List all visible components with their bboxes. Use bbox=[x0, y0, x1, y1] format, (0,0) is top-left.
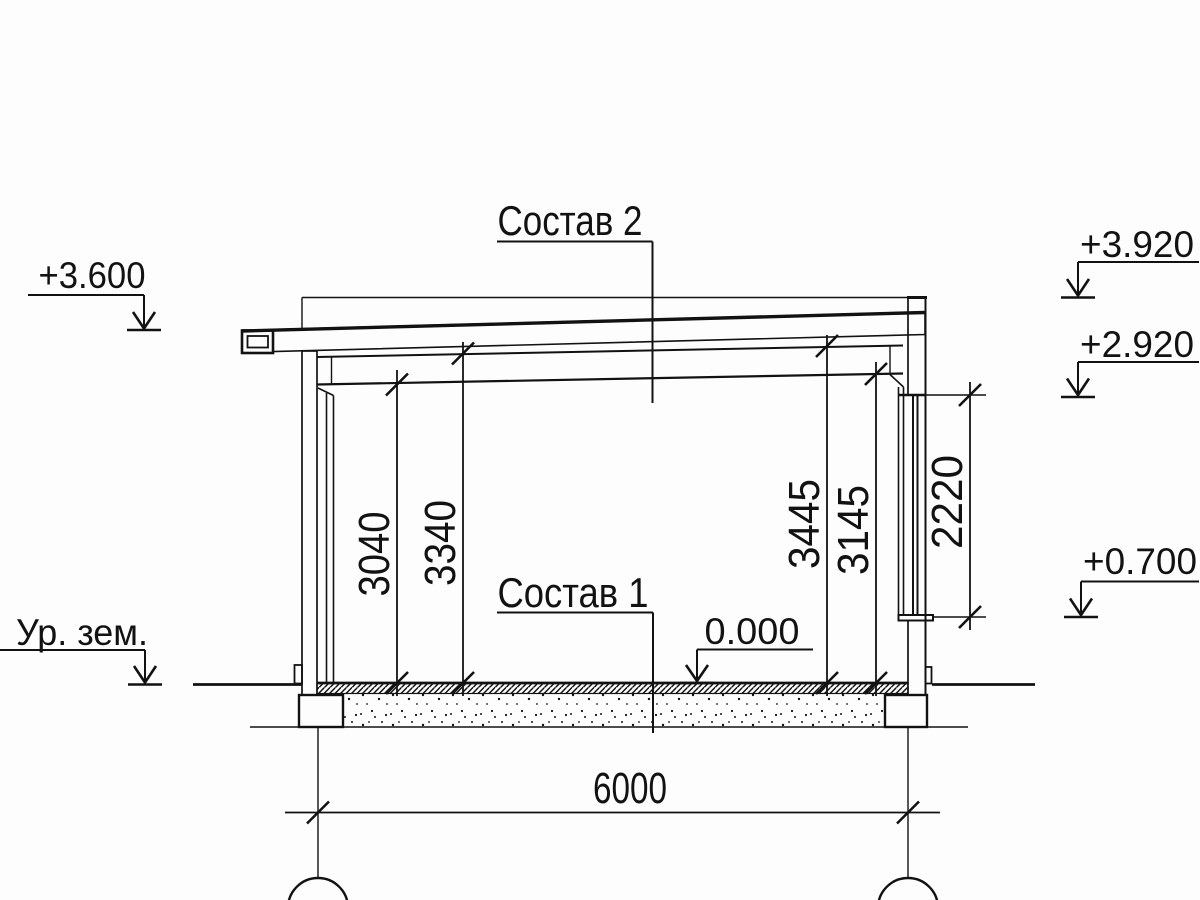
ground-level-text: Ур. зем. bbox=[16, 612, 148, 653]
grid-bubble-left bbox=[288, 878, 348, 900]
dim-soffit-height-left: 3340 bbox=[416, 342, 474, 696]
floor-level-text: 0.000 bbox=[705, 611, 800, 652]
left-wall bbox=[295, 351, 334, 695]
right-foundation-block bbox=[885, 695, 927, 727]
eave-level-text: +3.600 bbox=[39, 255, 146, 296]
opening-top-level-text: +2.920 bbox=[1080, 324, 1194, 365]
sill-level-text: +0.700 bbox=[1083, 541, 1197, 582]
roof-composition-text: Состав 2 bbox=[498, 197, 643, 244]
dim-opening-height: 2220 bbox=[923, 382, 986, 630]
dim-text: 3445 bbox=[780, 479, 829, 569]
window-sill bbox=[899, 615, 934, 621]
elevation-mark-floor: 0.000 bbox=[680, 611, 813, 683]
elevation-mark-sill: +0.700 bbox=[1064, 541, 1199, 617]
right-haunch bbox=[890, 375, 904, 388]
dim-span: 6000 bbox=[285, 727, 940, 900]
dim-text: 6000 bbox=[593, 764, 667, 813]
floor-bedding-stipple bbox=[343, 694, 885, 728]
drawing-sheet: +3.600 Ур. зем. +3.920 +2.920 +0.700 0.0… bbox=[0, 0, 1200, 900]
dim-text: 3040 bbox=[350, 512, 399, 597]
left-wall-hatch bbox=[302, 351, 317, 695]
elevation-mark-ground: Ур. зем. bbox=[0, 612, 162, 685]
roof-composition-leader: Состав 2 bbox=[497, 197, 653, 403]
dim-text: 3145 bbox=[829, 485, 878, 575]
left-foundation-block bbox=[299, 695, 343, 727]
elevation-mark-opening-top: +2.920 bbox=[1061, 324, 1199, 397]
dim-text: 3340 bbox=[416, 500, 465, 586]
section-drawing: +3.600 Ур. зем. +3.920 +2.920 +0.700 0.0… bbox=[0, 0, 1200, 900]
elevation-mark-eave: +3.600 bbox=[28, 255, 161, 330]
dim-clear-height-right: 3145 bbox=[829, 362, 887, 696]
roof-top-line bbox=[242, 313, 925, 332]
floor-composition-text: Состав 1 bbox=[498, 569, 649, 616]
grid-bubble-right bbox=[878, 878, 938, 900]
eave-gutter-inner bbox=[248, 336, 269, 348]
dim-text: 2220 bbox=[923, 455, 972, 549]
dim-clear-height-left: 3040 bbox=[350, 370, 408, 696]
parapet-level-text: +3.920 bbox=[1080, 224, 1194, 265]
roof-slab bbox=[242, 312, 925, 385]
right-wall-lower-hatch bbox=[908, 621, 926, 696]
roof-soffit-line bbox=[317, 346, 903, 358]
left-plinth bbox=[295, 665, 303, 684]
elevation-mark-parapet: +3.920 bbox=[1061, 224, 1199, 298]
